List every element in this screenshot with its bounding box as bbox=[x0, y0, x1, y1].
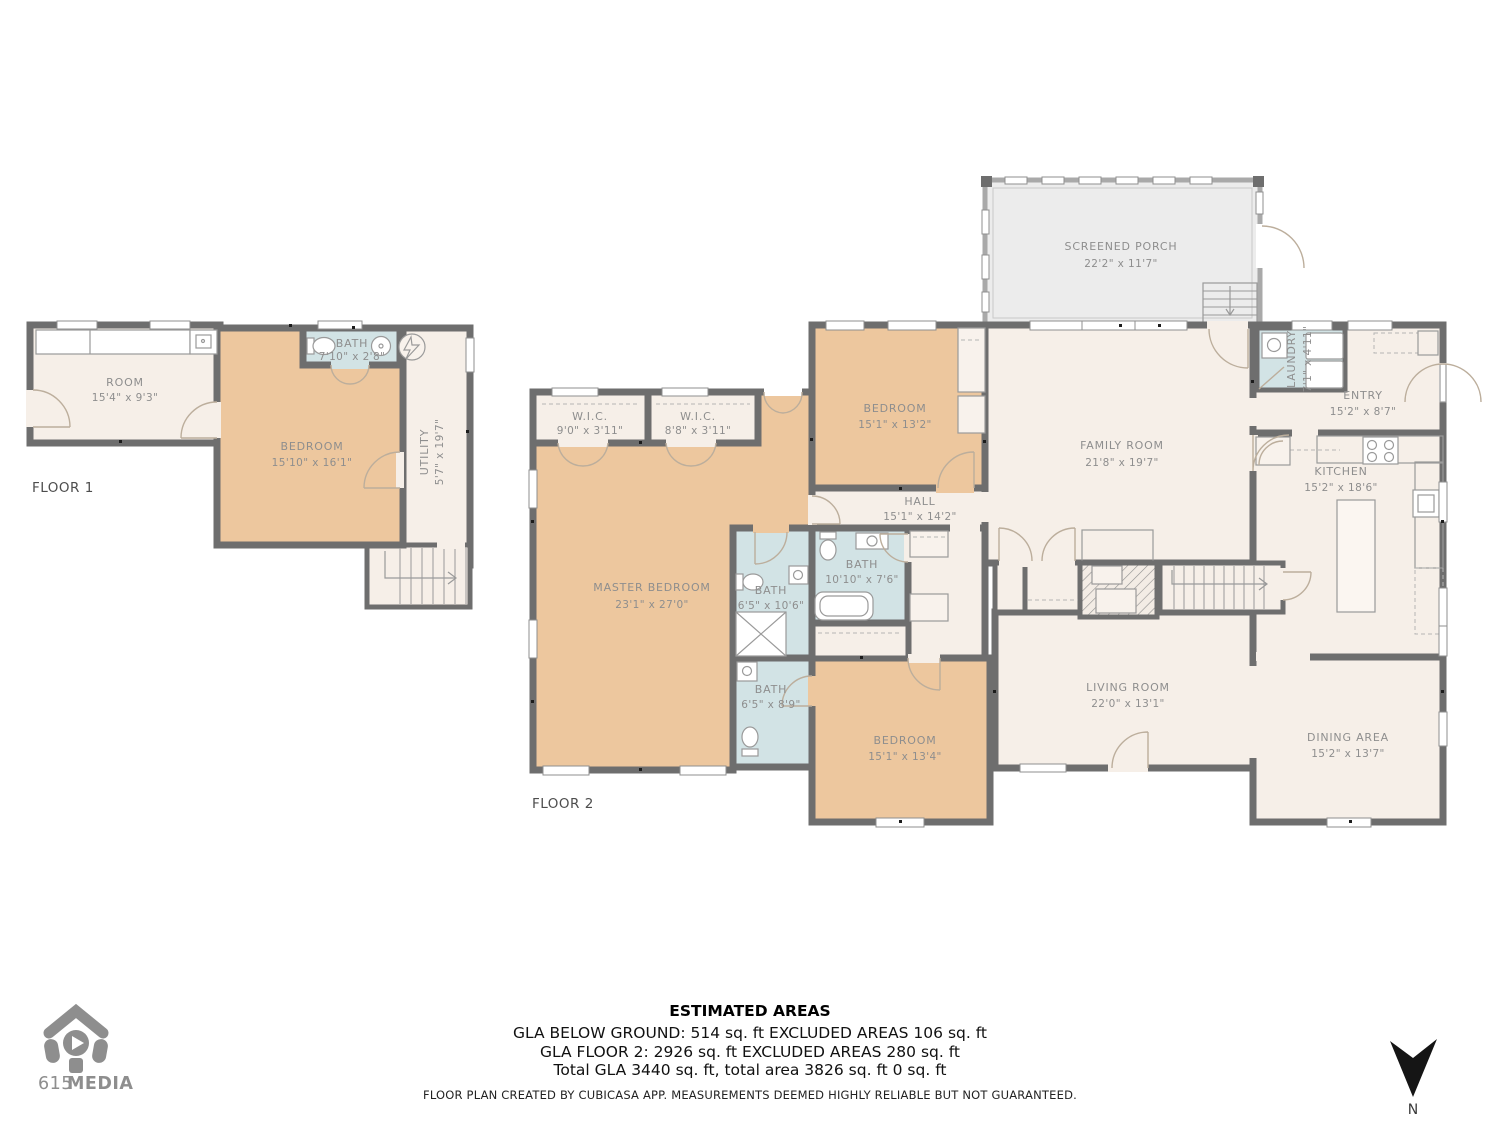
kitchen-island bbox=[1337, 500, 1375, 612]
window bbox=[1348, 321, 1392, 330]
window bbox=[552, 388, 598, 396]
gla-total: Total GLA 3440 sq. ft, total area 3826 s… bbox=[553, 1061, 947, 1079]
room-label: SCREENED PORCH bbox=[1065, 240, 1178, 253]
counter bbox=[36, 330, 190, 354]
water-heater-icon bbox=[399, 334, 425, 360]
room-label: MASTER BEDROOM bbox=[593, 581, 710, 594]
screened-porch: SCREENED PORCH 22'2" x 11'7" bbox=[981, 176, 1304, 326]
window bbox=[1439, 588, 1447, 626]
room-label: BATH bbox=[755, 683, 787, 696]
room-dims: 6'5" x 8'9" bbox=[741, 699, 800, 711]
window bbox=[826, 321, 864, 330]
sink bbox=[789, 566, 808, 584]
floor2-title: FLOOR 2 bbox=[532, 796, 594, 812]
window bbox=[543, 766, 589, 775]
window bbox=[529, 470, 537, 508]
sink bbox=[737, 662, 757, 681]
room-porch bbox=[985, 180, 1260, 326]
toilet bbox=[736, 574, 743, 590]
north-label: N bbox=[1408, 1102, 1418, 1118]
brand-logo: 615 MEDIA bbox=[38, 1011, 133, 1094]
window bbox=[466, 338, 474, 372]
room-label: DINING AREA bbox=[1307, 731, 1389, 744]
closet bbox=[910, 594, 948, 621]
room-dims: 15'10" x 16'1" bbox=[272, 457, 353, 469]
room-label: BATH bbox=[336, 337, 368, 350]
toilet bbox=[742, 727, 758, 747]
room-label: KITCHEN bbox=[1314, 465, 1367, 478]
floor2-rooms bbox=[533, 325, 1443, 822]
room-dims: 15'2" x 18'6" bbox=[1304, 482, 1378, 494]
closet bbox=[958, 328, 985, 392]
floor1-plan: ROOM 15'4" x 9'3" BEDROOM 15'10" x 16'1"… bbox=[26, 321, 474, 607]
room-label: UTILITY bbox=[418, 429, 431, 475]
sink bbox=[1262, 333, 1287, 358]
window bbox=[662, 388, 708, 396]
room-dims: 22'0" x 13'1" bbox=[1091, 698, 1165, 710]
room-label: BATH bbox=[846, 558, 878, 571]
window bbox=[1439, 482, 1447, 522]
room-dims: 15'2" x 13'7" bbox=[1311, 748, 1385, 760]
room-label: ENTRY bbox=[1343, 389, 1383, 402]
window bbox=[1030, 321, 1187, 330]
window bbox=[1020, 764, 1066, 772]
floor-plan-canvas: ROOM 15'4" x 9'3" BEDROOM 15'10" x 16'1"… bbox=[0, 0, 1500, 1125]
gla-floor2: GLA FLOOR 2: 2926 sq. ft EXCLUDED AREAS … bbox=[540, 1043, 960, 1061]
north-compass: N bbox=[1390, 1039, 1437, 1118]
window bbox=[57, 321, 97, 329]
room-label: HALL bbox=[904, 495, 935, 508]
room-label: BEDROOM bbox=[863, 402, 926, 415]
window bbox=[1439, 712, 1447, 746]
room-dims: 5'7" x 19'7" bbox=[434, 419, 446, 486]
room-dims: 21'8" x 19'7" bbox=[1085, 457, 1159, 469]
room-dims: 15'1" x 13'4" bbox=[868, 751, 942, 763]
window bbox=[680, 766, 726, 775]
room-label: BATH bbox=[755, 584, 787, 597]
closet bbox=[958, 396, 985, 433]
room-label: W.I.C. bbox=[572, 410, 608, 423]
room-dims: 15'4" x 9'3" bbox=[92, 392, 159, 404]
house-logo-icon bbox=[43, 1011, 109, 1073]
room-label: FAMILY ROOM bbox=[1080, 439, 1164, 452]
room-label: ROOM bbox=[106, 376, 144, 389]
room-dims: 23'1" x 27'0" bbox=[615, 599, 689, 611]
closet bbox=[1025, 563, 1080, 612]
room-dims: 10'10" x 7'6" bbox=[825, 574, 899, 586]
hall-closet bbox=[812, 623, 908, 658]
closet bbox=[1256, 437, 1290, 465]
gla-below-ground: GLA BELOW GROUND: 514 sq. ft EXCLUDED AR… bbox=[513, 1024, 987, 1042]
disclaimer: FLOOR PLAN CREATED BY CUBICASA APP. MEAS… bbox=[423, 1088, 1077, 1102]
window bbox=[150, 321, 190, 329]
closet bbox=[910, 531, 948, 557]
footer: ESTIMATED AREAS GLA BELOW GROUND: 514 sq… bbox=[423, 1002, 1077, 1102]
sink bbox=[1413, 490, 1439, 517]
toilet bbox=[820, 532, 836, 539]
stairwell-middle bbox=[1160, 563, 1283, 612]
logo-text-suffix: MEDIA bbox=[67, 1074, 133, 1094]
room-dims: 7'10" x 2'8" bbox=[319, 351, 386, 363]
door-arc bbox=[1262, 226, 1304, 268]
door-leaf bbox=[1440, 364, 1446, 402]
room-label: BEDROOM bbox=[873, 734, 936, 747]
closet bbox=[995, 563, 1025, 612]
window bbox=[1439, 622, 1447, 656]
room-dims: 15'2" x 8'7" bbox=[1330, 406, 1397, 418]
room-dims: 9'0" x 3'11" bbox=[557, 425, 624, 437]
window bbox=[888, 321, 936, 330]
room-dims: 15'1" x 14'2" bbox=[883, 511, 957, 523]
room-dims: 7'1" x 4'11" bbox=[1302, 326, 1314, 393]
room-dims: 6'5" x 10'6" bbox=[738, 600, 805, 612]
room-label: BEDROOM bbox=[280, 440, 343, 453]
room-dims: 8'8" x 3'11" bbox=[665, 425, 732, 437]
floor1-title: FLOOR 1 bbox=[32, 480, 94, 496]
window bbox=[529, 620, 537, 658]
north-arrow-icon bbox=[1390, 1039, 1437, 1097]
estimated-areas-title: ESTIMATED AREAS bbox=[669, 1002, 830, 1020]
room-label: W.I.C. bbox=[680, 410, 716, 423]
room-label: LIVING ROOM bbox=[1086, 681, 1170, 694]
room-dims: 15'1" x 13'2" bbox=[858, 419, 932, 431]
room-label: LAUNDRY bbox=[1285, 330, 1298, 388]
room-dims: 22'2" x 11'7" bbox=[1084, 258, 1158, 270]
window bbox=[318, 321, 362, 329]
